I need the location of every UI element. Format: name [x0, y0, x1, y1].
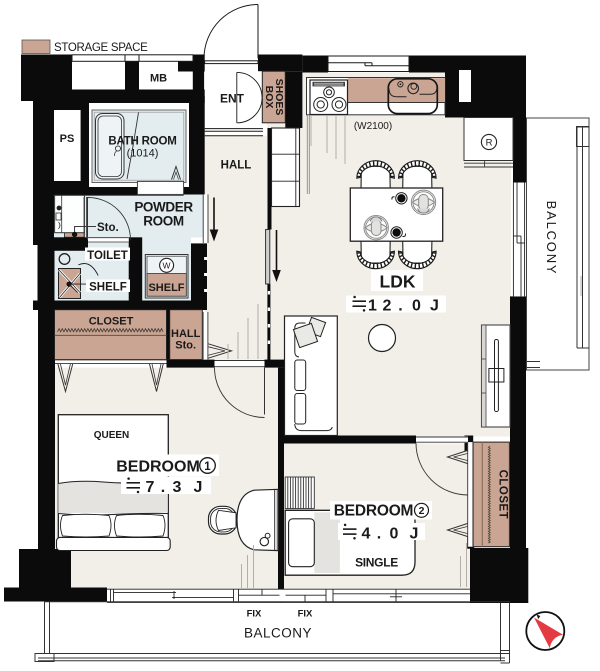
svg-text:R: R [486, 138, 493, 149]
svg-text:PS: PS [60, 133, 75, 145]
svg-text:J: J [410, 525, 419, 542]
svg-text:Sto.: Sto. [175, 340, 196, 352]
svg-text:3: 3 [173, 479, 182, 496]
svg-text:CLOSET: CLOSET [497, 470, 509, 520]
svg-text:(1014): (1014) [127, 148, 159, 160]
svg-text:QUEEN: QUEEN [94, 430, 130, 441]
svg-text:BOX: BOX [263, 86, 275, 109]
svg-text:.: . [398, 298, 402, 315]
svg-text:2: 2 [419, 505, 425, 517]
svg-text:STORAGE SPACE: STORAGE SPACE [54, 42, 148, 54]
svg-text:BALCONY: BALCONY [544, 201, 559, 276]
svg-text:FIX: FIX [298, 609, 313, 620]
svg-text:FIX: FIX [247, 609, 262, 620]
svg-text:.: . [377, 525, 381, 542]
svg-text:1: 1 [204, 461, 211, 473]
svg-text:BALCONY: BALCONY [244, 626, 312, 641]
svg-text:MB: MB [150, 73, 167, 85]
svg-text:Sto.: Sto. [97, 222, 119, 234]
svg-text:1: 1 [368, 298, 377, 315]
svg-text:4: 4 [362, 525, 371, 542]
svg-text:.: . [161, 479, 165, 496]
svg-text:BEDROOM: BEDROOM [334, 503, 414, 520]
svg-text:TOILET: TOILET [87, 250, 128, 262]
svg-text:CLOSET: CLOSET [89, 316, 134, 328]
svg-text:BEDROOM: BEDROOM [116, 459, 200, 476]
svg-text:7: 7 [146, 479, 155, 496]
svg-text:J: J [194, 479, 203, 496]
svg-text:0: 0 [390, 525, 399, 542]
svg-text:LDK: LDK [380, 272, 416, 292]
svg-text:ROOM: ROOM [143, 214, 184, 229]
svg-text:POWDER: POWDER [134, 200, 193, 215]
svg-text:SHELF: SHELF [89, 282, 127, 294]
svg-text:HALL: HALL [221, 160, 252, 172]
svg-text:0: 0 [412, 298, 421, 315]
svg-text:SHELF: SHELF [148, 282, 184, 294]
svg-text:SINGLE: SINGLE [355, 556, 398, 570]
svg-text:ENT: ENT [220, 92, 245, 106]
svg-text:BATH ROOM: BATH ROOM [108, 136, 176, 148]
svg-text:2: 2 [383, 298, 392, 315]
svg-text:HALL: HALL [171, 328, 201, 340]
svg-text:W: W [162, 261, 170, 271]
svg-text:(W2100): (W2100) [354, 121, 392, 132]
svg-text:J: J [430, 298, 439, 315]
